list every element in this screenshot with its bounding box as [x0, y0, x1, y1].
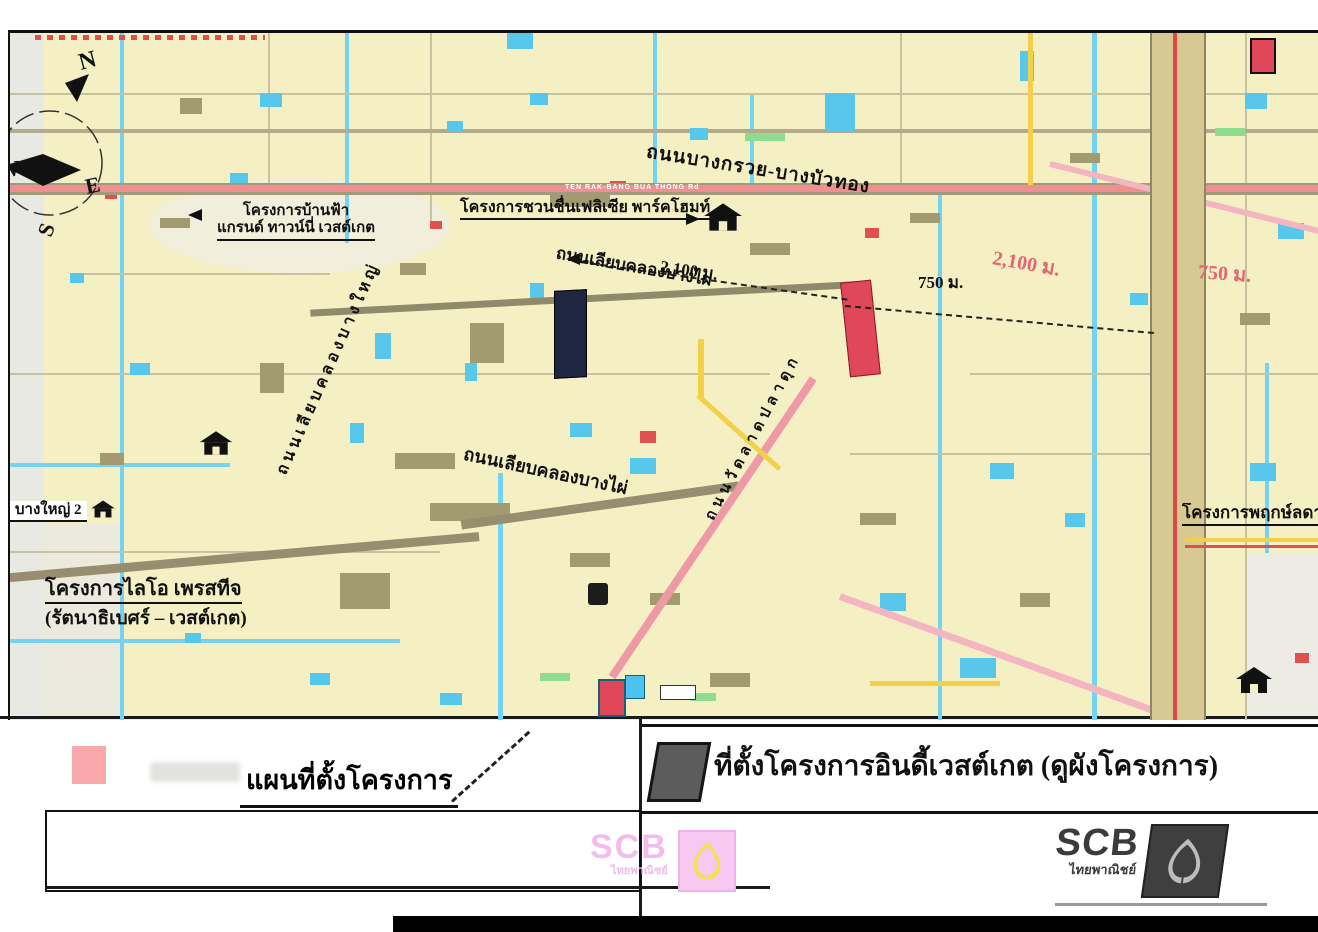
- map-block: [310, 673, 330, 685]
- map-block: [540, 673, 570, 681]
- legend-right-text: ที่ตั้งโครงการอินดี้เวสต์เกต (ดูผังโครงก…: [714, 744, 1218, 788]
- scb-thai-name: ไทยพาณิชย์: [1052, 863, 1137, 876]
- map-block: [1065, 513, 1085, 527]
- label-line: (รัตนาธิเบศร์ – เวสต์เกต): [45, 608, 247, 630]
- map-block: [630, 458, 656, 474]
- house-icon: [198, 429, 234, 457]
- faded-text: [150, 762, 240, 782]
- site-marker-red: [598, 679, 626, 717]
- label-project-banfah: โครงการบ้านฟ้า แกรนด์ ทาวน์นี่ เวสต์เกต: [208, 203, 384, 241]
- map-document: TEN RAK-BANG BUA THONG Rd N: [0, 0, 1318, 932]
- highway-kanchanaphisek: [1150, 33, 1206, 720]
- map-block: [860, 513, 896, 525]
- map-block: [375, 333, 391, 359]
- label-distance-750: 750 ม.: [918, 273, 963, 293]
- label-distance-750-red: 750 ม.: [1197, 261, 1252, 288]
- map-block: [990, 463, 1014, 479]
- map-block: [710, 673, 750, 687]
- label-road-bang-yai: ถนนเลียบคลองบางใหญ่: [274, 259, 385, 478]
- road-minor: [70, 273, 330, 275]
- label-line: โครงการไลโอ เพรสทีจ: [45, 578, 242, 604]
- road-minor: [970, 373, 1318, 375]
- compass-rose: N E W S: [8, 38, 155, 248]
- label-project-chuanchuen: โครงการชวนชื่นเฟลิเซีย พาร์คโฮมท์: [460, 199, 710, 220]
- arrow-icon: [188, 209, 202, 221]
- label-project-lio: โครงการไลโอ เพรสทีจ (รัตนาธิเบศร์ – เวสต…: [45, 578, 247, 630]
- map-block: [465, 363, 477, 381]
- compass-w: W: [8, 155, 21, 183]
- map-block: [260, 93, 282, 107]
- road-minor: [268, 33, 270, 193]
- scb-emblem-icon: [678, 830, 736, 892]
- map-block: [260, 363, 284, 393]
- legend-swatch-dark: [647, 742, 712, 802]
- road-minor: [10, 551, 440, 553]
- map-block: [160, 218, 190, 228]
- label-line: โครงการบ้านฟ้า: [208, 203, 384, 220]
- map-marker-icon: [588, 583, 608, 605]
- map-block: [690, 128, 708, 140]
- road-yellow: [870, 681, 1000, 686]
- map-block: [745, 133, 785, 141]
- map-block: [1020, 593, 1050, 607]
- map-block: [430, 221, 442, 229]
- map-scale-box: [660, 685, 696, 700]
- road-minor: [10, 129, 1318, 133]
- empty-legend-box: [45, 810, 641, 892]
- road-minor: [10, 373, 770, 375]
- map-block: [910, 213, 940, 223]
- map-block: [185, 633, 201, 643]
- road-red-segment: [1185, 545, 1318, 548]
- map-block: [825, 93, 855, 131]
- legend-left-title: แผนที่ตั้งโครงการ: [240, 758, 458, 808]
- map-block: [570, 553, 610, 567]
- scb-emblem-icon: [1141, 824, 1229, 898]
- map-block: [340, 573, 390, 609]
- road-yellow: [1028, 33, 1033, 185]
- road-liap-klong-top: [310, 280, 870, 316]
- divider: [1055, 903, 1267, 906]
- map-block: [507, 33, 533, 49]
- road-yellow: [698, 339, 704, 399]
- scb-logo-dark: SCB ไทยพาณิชย์: [1055, 824, 1224, 898]
- label-road-wat-lat-pla-duk: ถนนวัดลาดปลาดุก: [702, 351, 805, 523]
- site-marker-blue: [625, 675, 645, 699]
- road-minor: [900, 33, 902, 183]
- map-block: [1070, 153, 1100, 163]
- highway-centerline: [1173, 33, 1177, 720]
- road-minor: [10, 93, 1318, 95]
- scb-thai-name: ไทยพาณิชย์: [590, 866, 668, 877]
- scb-acronym: SCB: [590, 830, 668, 864]
- map-block: [70, 273, 84, 283]
- label-bangyai2: บางใหญ่ 2: [10, 501, 87, 522]
- house-icon: [90, 499, 116, 519]
- map-block: [350, 423, 364, 443]
- label-distance-2100-red: 2,100 ม.: [991, 247, 1062, 281]
- road-name-en: TEN RAK-BANG BUA THONG Rd: [565, 184, 699, 191]
- canal-segment: [10, 639, 400, 643]
- map-block: [470, 323, 504, 363]
- map-block: [1245, 93, 1267, 109]
- map-block: [1295, 653, 1309, 663]
- scb-logo-watermark: SCB ไทยพาณิชย์: [590, 830, 736, 892]
- compass-e: E: [83, 171, 103, 199]
- house-icon: [1234, 665, 1274, 695]
- map-block: [100, 453, 124, 465]
- map-block: [865, 228, 879, 238]
- map-block: [960, 658, 996, 678]
- map-block: [395, 453, 455, 469]
- label-project-pruek: โครงการพฤกษ์ลดา: [1182, 503, 1318, 526]
- divider: [0, 716, 1318, 719]
- map-block: [180, 98, 202, 114]
- fold-marks: [451, 731, 530, 803]
- map-block: [440, 693, 462, 705]
- scb-acronym: SCB: [1054, 824, 1141, 862]
- map-block: [640, 431, 656, 443]
- map-block: [400, 263, 426, 275]
- canal-segment: [1092, 33, 1097, 720]
- map-block: [130, 363, 150, 375]
- compass-s: S: [32, 220, 60, 240]
- map-panel: TEN RAK-BANG BUA THONG Rd N: [8, 30, 1318, 720]
- compass-n: N: [76, 46, 100, 76]
- site-marker-red: [1250, 38, 1276, 74]
- map-block: [230, 173, 248, 183]
- map-block: [1240, 313, 1270, 325]
- label-road-liap-klong-bottom: ถนนเลียบคลองบางไผ่: [462, 444, 630, 499]
- map-block: [1250, 463, 1276, 481]
- road-minor: [1245, 33, 1247, 720]
- label-line: แกรนด์ ทาวน์นี่ เวสต์เกต: [217, 220, 375, 240]
- bottom-bar: [393, 916, 1318, 932]
- site-highlight-red: [840, 280, 881, 378]
- map-block: [750, 243, 790, 255]
- map-block: [570, 423, 592, 437]
- road-wat-lat-pla-duk: [609, 376, 817, 679]
- road-minor: [850, 453, 1150, 455]
- site-indy-westgate: [554, 289, 587, 379]
- map-block: [1130, 293, 1148, 305]
- map-block: [530, 93, 548, 105]
- map-block: [447, 121, 463, 131]
- road-yellow: [1185, 538, 1318, 542]
- distance-line: [845, 305, 1154, 334]
- map-block: [1215, 128, 1245, 136]
- legend-swatch-pink: [72, 746, 106, 784]
